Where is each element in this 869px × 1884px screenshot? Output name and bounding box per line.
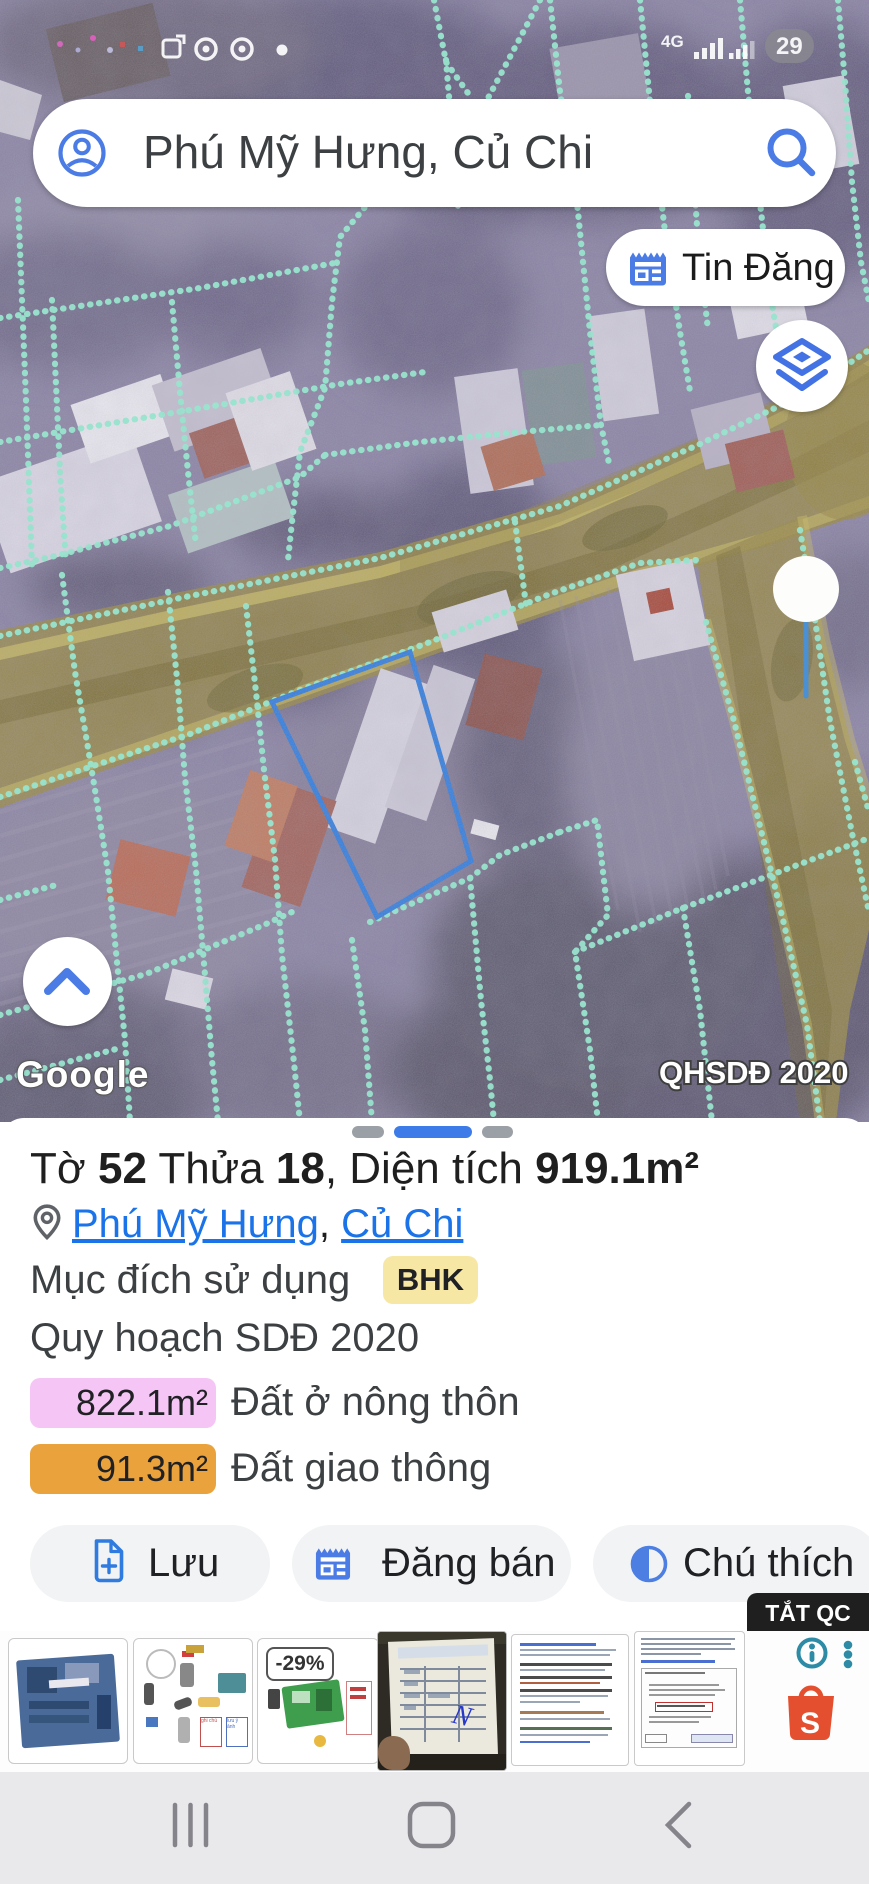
svg-text:29: 29 (776, 33, 803, 60)
svg-text:4G: 4G (661, 32, 684, 51)
svg-text:S: S (800, 1707, 820, 1740)
